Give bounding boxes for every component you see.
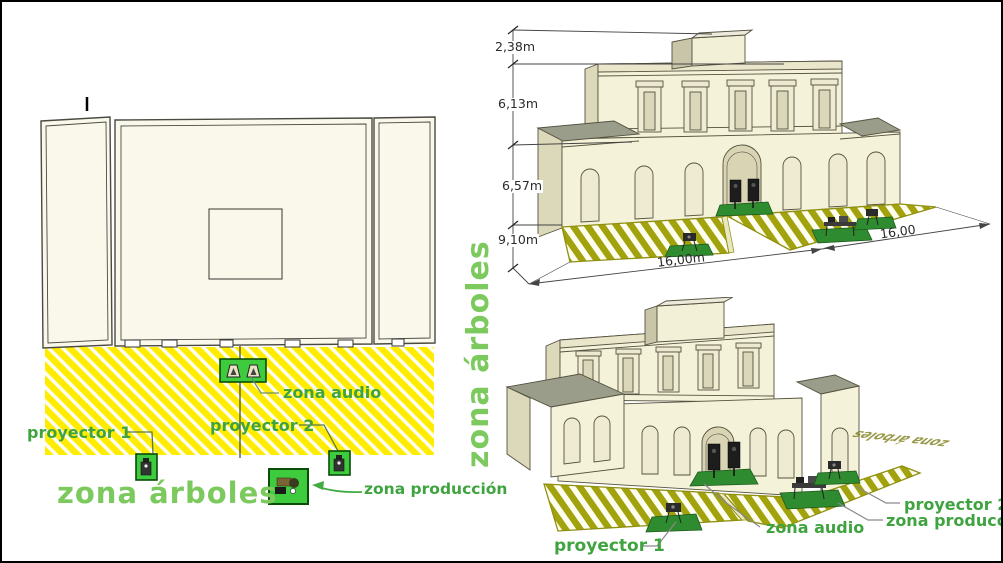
persp-zona-produccion-label: zona producción [886,513,1003,529]
audio-zone-box [220,359,266,382]
plan-building-blocks [41,117,435,348]
arrow-icon [312,481,324,490]
speaker-icon [730,180,741,202]
speaker-icon [728,442,740,468]
speaker-icon [708,444,720,470]
plan-zona-audio-label: zona audio [283,385,381,401]
dim-upper-floor-height: 6,13m [497,98,539,111]
persp-proyector1-label: proyector 1 [554,538,665,555]
plan-zona-arboles-label: zona árboles [57,479,278,508]
dim-roof-box-height: 2,38m [494,41,536,54]
dimensioned-perspective-drawing [482,2,1003,297]
dim-ground-depth: 9,10m [497,234,539,247]
persp-zona-audio-label: zona audio [766,520,864,536]
plan-proyector1-label: proyector 1 [27,425,131,441]
dim-lower-floor-height: 6,57m [501,180,543,193]
building-front-perspective [538,30,900,237]
plan-proyector2-label: proyector 2 [210,418,314,434]
diagram-canvas: zona audio proyector 1 proyector 2 zona … [0,0,1003,563]
speaker-icon [748,179,759,201]
building-labeled-perspective [507,297,859,496]
plan-inner-courtyard [209,209,282,279]
projector-2-box [329,451,350,475]
production-arrow [312,481,362,492]
